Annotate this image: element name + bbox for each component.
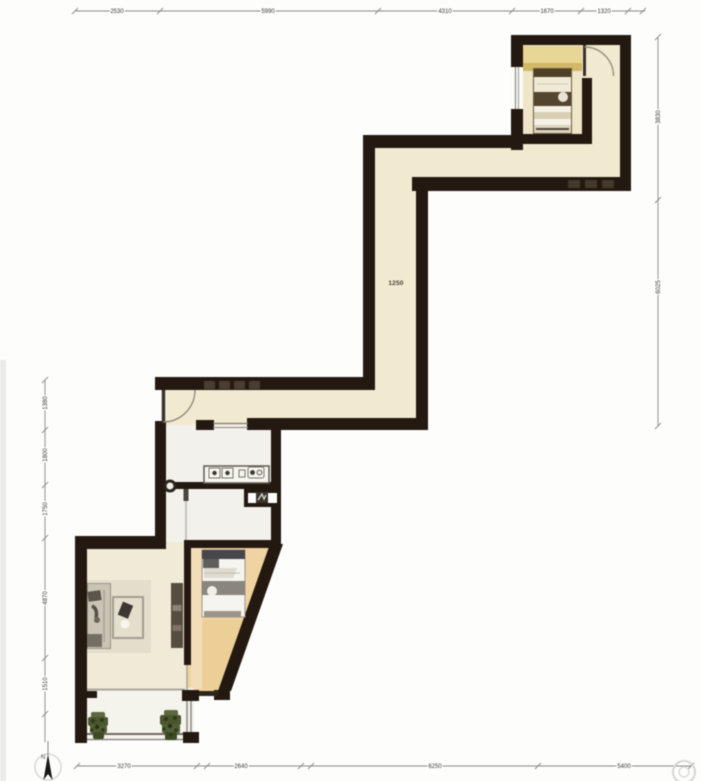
svg-text:6025: 6025 [656,280,662,294]
svg-text:5990: 5990 [261,9,275,15]
svg-text:N: N [41,755,45,761]
svg-text:1250: 1250 [388,280,403,287]
svg-text:1510: 1510 [43,677,49,691]
svg-text:6250: 6250 [428,764,442,770]
svg-text:4870: 4870 [43,591,49,605]
svg-text:1750: 1750 [43,502,49,516]
svg-text:1380: 1380 [43,396,49,410]
svg-text:3270: 3270 [117,764,131,770]
svg-text:4310: 4310 [438,9,452,15]
svg-text:2530: 2530 [110,9,124,15]
svg-text:5400: 5400 [617,764,631,770]
svg-text:1800: 1800 [43,448,49,462]
svg-text:3830: 3830 [656,110,662,124]
svg-text:1670: 1670 [540,9,554,15]
svg-text:2640: 2640 [234,764,248,770]
svg-text:1320: 1320 [597,9,611,15]
